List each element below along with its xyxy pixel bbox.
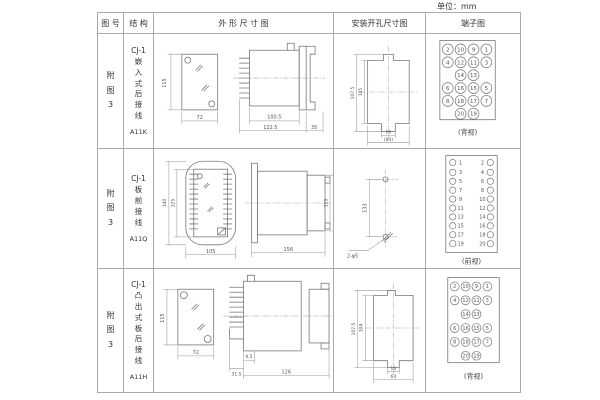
dim-label-width: 72 bbox=[197, 114, 203, 120]
terminal-number: 5 bbox=[485, 85, 488, 91]
terminal-grid: 2109141211314136161558181772019 bbox=[450, 282, 492, 360]
row1-outline-drawing: 115 72 100.5 122.5 35 bbox=[154, 34, 333, 149]
row2-structure: CJ-1 板 前 接 线 A11Q bbox=[124, 149, 154, 269]
row1-terminal-cell: 2109141211314136161558181772019 (背视) bbox=[426, 34, 521, 149]
terminal-number: 18 bbox=[462, 339, 468, 345]
terminal-number: 7 bbox=[485, 98, 488, 104]
terminal-number: 19 bbox=[473, 353, 479, 359]
terminal-circle bbox=[450, 240, 456, 246]
dim-label-outer-height: 140 bbox=[162, 198, 168, 207]
terminal-circle bbox=[450, 213, 456, 219]
terminal-number: 11 bbox=[470, 60, 477, 66]
terminal-number: 1 bbox=[459, 160, 462, 166]
dim-label-inner-height: 105 bbox=[358, 87, 364, 96]
terminal-circle bbox=[450, 204, 456, 210]
terminal-number: 15 bbox=[470, 85, 477, 91]
terminal-circle bbox=[450, 187, 456, 193]
row2-outline-drawing: 140 125 105 156 115 bbox=[154, 149, 333, 269]
terminal-number: 14 bbox=[462, 311, 468, 317]
terminal-circle bbox=[487, 169, 493, 175]
terminal-number: 18 bbox=[479, 232, 485, 238]
terminal-number: 11 bbox=[473, 298, 479, 304]
relay-front-view bbox=[186, 161, 236, 245]
dim-label-height: 115 bbox=[162, 78, 168, 87]
relay-front-view bbox=[182, 54, 218, 110]
terminal-number: 9 bbox=[475, 284, 478, 290]
terminal-number: 15 bbox=[457, 223, 463, 229]
dim-label-inner-height: 125 bbox=[170, 198, 176, 207]
row1-outline-cell: 115 72 100.5 122.5 35 bbox=[154, 34, 334, 149]
terminal-number: 16 bbox=[457, 85, 464, 91]
datasheet-page: 单位：mm 图 号 结 构 外 形 尺 寸 图 安装开孔尺寸图 端子图 附 图 … bbox=[0, 0, 600, 400]
relay-side-view bbox=[230, 275, 329, 351]
unit-label: 单位：mm bbox=[437, 1, 477, 12]
row3-model-code: A11H bbox=[130, 373, 148, 381]
dim-label-total-length: 122.5 bbox=[263, 124, 277, 130]
terminal-number: 10 bbox=[479, 196, 485, 202]
row3-terminal-drawing: 2109141211314136161558181772019 (背视) bbox=[426, 269, 520, 393]
row3-fig-no: 附 图 3 bbox=[98, 269, 124, 393]
terminal-number: 5 bbox=[486, 325, 489, 331]
terminal-number: 7 bbox=[459, 187, 462, 193]
dim-label-body-length: 100.5 bbox=[267, 114, 281, 120]
terminal-number: 20 bbox=[462, 353, 468, 359]
terminal-circle bbox=[487, 222, 493, 228]
dim-label-pin-depth: 9.5 bbox=[245, 353, 252, 359]
terminal-circle bbox=[450, 222, 456, 228]
row1-mounting-cell: 107.5 105 16 (64) bbox=[334, 34, 426, 149]
terminal-number: 16 bbox=[479, 223, 485, 229]
dim-label-rear-depth: 31.5 bbox=[232, 371, 242, 377]
terminal-circle bbox=[487, 231, 493, 237]
dim-label-length: 126 bbox=[282, 369, 291, 375]
dim-label-inner-height: 104 bbox=[359, 323, 365, 332]
row2-fig-no: 附 图 3 bbox=[98, 149, 124, 269]
dim-label-flange-depth: 35 bbox=[311, 124, 317, 130]
row2-terminal-cell: 1234567891011121314151617181920 (前视) bbox=[426, 149, 521, 269]
dim-label-side-height: 115 bbox=[324, 198, 330, 207]
row1-model-code: A11K bbox=[130, 128, 147, 136]
terminal-number: 6 bbox=[453, 325, 456, 331]
terminal-number: 3 bbox=[459, 170, 462, 176]
row1-fig-no: 附 图 3 bbox=[98, 34, 124, 149]
dim-label-length: 156 bbox=[284, 246, 293, 252]
terminal-circle bbox=[487, 178, 493, 184]
terminal-number: 13 bbox=[470, 73, 477, 79]
terminal-number: 12 bbox=[479, 205, 485, 211]
terminal-number: 1 bbox=[486, 284, 489, 290]
row1-mounting-drawing: 107.5 105 16 (64) bbox=[334, 34, 425, 149]
terminal-number: 20 bbox=[479, 241, 485, 247]
relay-side-view bbox=[240, 43, 316, 110]
row3-terminal-cell: 2109141211314136161558181772019 (背视) bbox=[426, 269, 521, 393]
terminal-number: 19 bbox=[470, 111, 477, 117]
terminal-number: 12 bbox=[457, 60, 464, 66]
terminal-circle bbox=[450, 195, 456, 201]
row2-mounting-cell: 133 2-φ5 bbox=[334, 149, 426, 269]
header-mounting-holes: 安装开孔尺寸图 bbox=[334, 13, 426, 34]
terminal-number: 16 bbox=[462, 325, 468, 331]
terminal-number: 5 bbox=[459, 179, 462, 185]
terminal-number: 3 bbox=[486, 298, 489, 304]
dim-label-height: 115 bbox=[160, 313, 166, 322]
header-structure: 结 构 bbox=[124, 13, 154, 34]
row3-structure-text: CJ-1 凸 出 式 板 后 接 线 bbox=[131, 280, 146, 367]
dim-label-outer-height: 107.5 bbox=[350, 86, 356, 99]
row3-structure: CJ-1 凸 出 式 板 后 接 线 A11H bbox=[124, 269, 154, 393]
terminal-block-outline bbox=[448, 277, 499, 362]
terminal-number: 14 bbox=[457, 73, 464, 79]
dimension-table: 图 号 结 构 外 形 尺 寸 图 安装开孔尺寸图 端子图 附 图 3 CJ-1… bbox=[97, 12, 521, 393]
terminal-number: 20 bbox=[457, 111, 464, 117]
dim-label-hole-spacing: 133 bbox=[363, 203, 369, 212]
dim-label-notch-width: 16 bbox=[386, 129, 392, 135]
row1-structure: CJ-1 嵌 入 式 后 接 线 A11K bbox=[124, 34, 154, 149]
terminal-grid: 2109141211314136161558181772019 bbox=[442, 44, 491, 119]
terminal-circle bbox=[487, 204, 493, 210]
row2-model-code: A11Q bbox=[130, 235, 148, 243]
terminal-number: 14 bbox=[479, 214, 485, 220]
view-label: (前视) bbox=[462, 256, 482, 265]
dim-label-width: 72 bbox=[193, 349, 199, 355]
dim-label-overall-width: 64 bbox=[391, 373, 397, 379]
dim-label-width: 105 bbox=[206, 248, 215, 254]
terminal-number: 8 bbox=[481, 187, 484, 193]
terminal-circle bbox=[487, 187, 493, 193]
terminal-circle bbox=[487, 213, 493, 219]
terminal-number: 12 bbox=[462, 298, 468, 304]
row2-outline-cell: 140 125 105 156 115 bbox=[154, 149, 334, 269]
view-label: (背视) bbox=[458, 127, 478, 136]
row2-structure-text: CJ-1 板 前 接 线 bbox=[131, 174, 146, 228]
header-outline-dims: 外 形 尺 寸 图 bbox=[154, 13, 334, 34]
terminal-number: 10 bbox=[462, 284, 468, 290]
terminal-circle bbox=[450, 169, 456, 175]
terminal-number: 7 bbox=[486, 339, 489, 345]
terminal-number: 2 bbox=[481, 160, 484, 166]
terminal-number: 6 bbox=[481, 179, 484, 185]
terminal-number: 6 bbox=[446, 85, 450, 91]
dim-label-outer-height: 107.5 bbox=[351, 322, 357, 335]
terminal-number: 13 bbox=[457, 214, 463, 220]
terminal-grid: 1234567891011121314151617181920 bbox=[450, 159, 494, 247]
terminal-number: 4 bbox=[446, 60, 450, 66]
terminal-number: 19 bbox=[457, 241, 463, 247]
row2-mounting-drawing: 133 2-φ5 bbox=[334, 149, 425, 269]
row3-outline-drawing: 115 72 9.5 31.5 126 bbox=[154, 269, 333, 393]
terminal-number: 8 bbox=[446, 98, 450, 104]
terminal-number: 13 bbox=[473, 311, 479, 317]
row3-mounting-drawing: 107.5 104 16 64 bbox=[334, 269, 425, 393]
terminal-number: 15 bbox=[473, 325, 479, 331]
hole-spec-label: 2-φ5 bbox=[347, 253, 358, 259]
terminal-number: 18 bbox=[457, 98, 464, 104]
terminal-number: 2 bbox=[453, 284, 456, 290]
dim-label-notch-width: 16 bbox=[391, 366, 397, 372]
header-terminal-diagram: 端子图 bbox=[426, 13, 521, 34]
terminal-number: 9 bbox=[472, 47, 476, 53]
relay-front-view bbox=[178, 289, 214, 345]
row2-terminal-drawing: 1234567891011121314151617181920 (前视) bbox=[426, 149, 520, 269]
terminal-circle bbox=[450, 231, 456, 237]
terminal-number: 10 bbox=[457, 47, 464, 53]
row1-terminal-drawing: 2109141211314136161558181772019 (背视) bbox=[426, 34, 520, 149]
row3-outline-cell: 115 72 9.5 31.5 126 bbox=[154, 269, 334, 393]
view-label: (背视) bbox=[464, 371, 484, 380]
terminal-circle bbox=[487, 240, 493, 246]
terminal-number: 17 bbox=[473, 339, 479, 345]
terminal-number: 9 bbox=[459, 196, 462, 202]
terminal-number: 1 bbox=[485, 47, 488, 53]
terminal-circle bbox=[450, 159, 456, 165]
terminal-number: 3 bbox=[485, 60, 489, 66]
dim-label-overall-width: (64) bbox=[384, 136, 393, 142]
terminal-number: 4 bbox=[481, 170, 484, 176]
terminal-number: 2 bbox=[446, 47, 449, 53]
terminal-number: 4 bbox=[453, 298, 456, 304]
row1-structure-text: CJ-1 嵌 入 式 后 接 线 bbox=[131, 46, 146, 122]
row3-mounting-cell: 107.5 104 16 64 bbox=[334, 269, 426, 393]
terminal-number: 11 bbox=[457, 205, 463, 211]
terminal-circle bbox=[487, 159, 493, 165]
terminal-circle bbox=[450, 178, 456, 184]
header-fig-no: 图 号 bbox=[98, 13, 124, 34]
terminal-number: 8 bbox=[453, 339, 456, 345]
terminal-number: 17 bbox=[457, 232, 463, 238]
terminal-circle bbox=[487, 195, 493, 201]
terminal-number: 17 bbox=[470, 98, 477, 104]
